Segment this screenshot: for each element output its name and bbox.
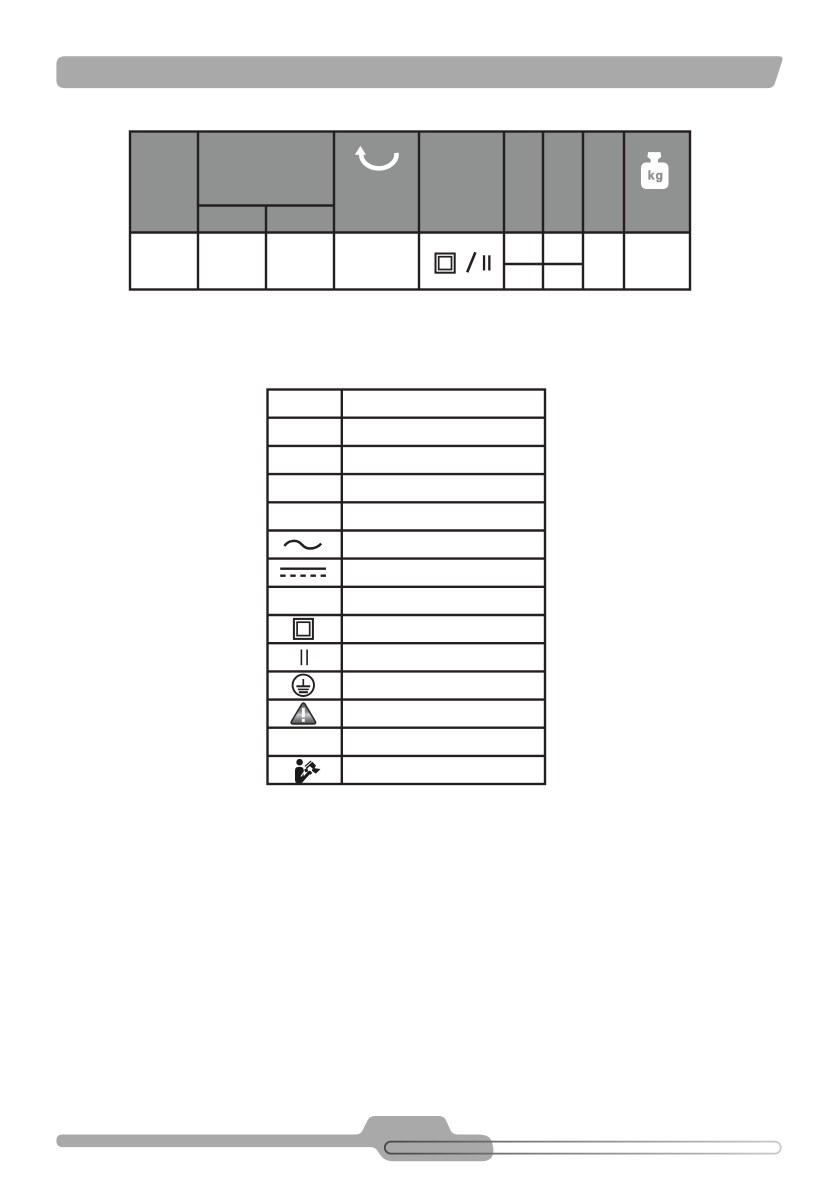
svg-text:kg: kg	[648, 169, 664, 183]
